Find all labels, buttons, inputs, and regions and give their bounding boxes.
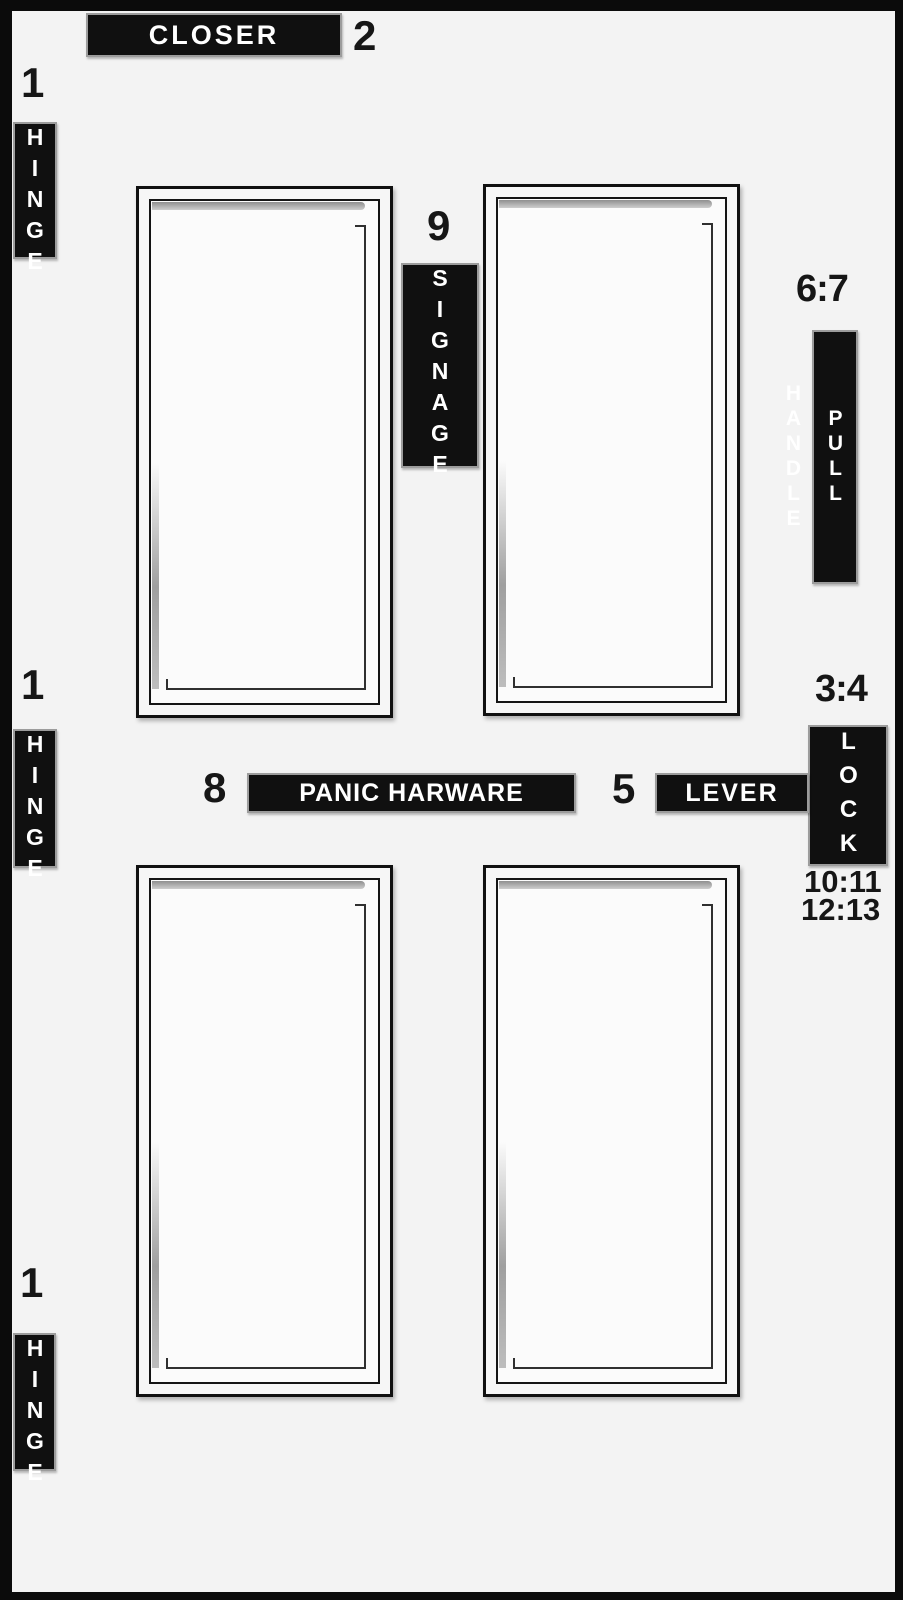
lever-label: LEVER [655, 773, 809, 813]
panel-bevel-left [499, 461, 506, 687]
hinge-bottom-label: HINGE [13, 1333, 56, 1471]
panel-bevel-left [152, 1142, 159, 1368]
lock-label: LOCK [808, 725, 888, 866]
panel-bevel-right [711, 904, 713, 1369]
panel-bevel-top [499, 200, 712, 208]
lever-number: 5 [612, 768, 634, 810]
door-panel-inset [496, 197, 727, 703]
panic-hardware-label: PANIC HARWARE [247, 773, 576, 813]
pull-handle-label: PULL HANDLE [812, 330, 858, 584]
pull-handle-number: 6:7 [796, 270, 848, 308]
closer-label: CLOSER [86, 13, 342, 57]
panel-bevel-bottom [513, 1367, 713, 1369]
hinge-middle-number: 1 [21, 664, 43, 706]
lock-number: 3:4 [815, 670, 867, 708]
panic-hardware-number: 8 [203, 767, 225, 809]
door-panel-top-right [483, 184, 740, 716]
closer-number: 2 [353, 15, 375, 57]
lock-number-below-2: 12:13 [801, 894, 880, 925]
panel-bevel-top [499, 881, 712, 889]
panel-bevel-right [711, 223, 713, 688]
hinge-bottom-number: 1 [20, 1262, 42, 1304]
hinge-middle-label: HINGE [13, 729, 57, 868]
panel-bevel-top [152, 881, 365, 889]
signage-label: SIGNAGE [401, 263, 479, 468]
panel-bevel-bottom [513, 686, 713, 688]
door-panel-inset [149, 878, 380, 1384]
panel-bevel-right [364, 225, 366, 690]
signage-number: 9 [427, 205, 449, 247]
door-panel-bottom-left [136, 865, 393, 1397]
door-panel-top-left [136, 186, 393, 718]
panel-bevel-top [152, 202, 365, 210]
panel-bevel-bottom [166, 1367, 366, 1369]
door-panel-inset [496, 878, 727, 1384]
door-panel-bottom-right [483, 865, 740, 1397]
panel-bevel-right [364, 904, 366, 1369]
panel-bevel-left [152, 463, 159, 689]
panel-bevel-bottom [166, 688, 366, 690]
hinge-top-label: HINGE [13, 122, 57, 259]
door-hardware-location-diagram: CLOSER 2 1 HINGE 1 HINGE 1 HINGE 9 SIGNA… [0, 0, 903, 1600]
hinge-top-number: 1 [21, 62, 43, 104]
panel-bevel-left [499, 1142, 506, 1368]
door-panel-inset [149, 199, 380, 705]
